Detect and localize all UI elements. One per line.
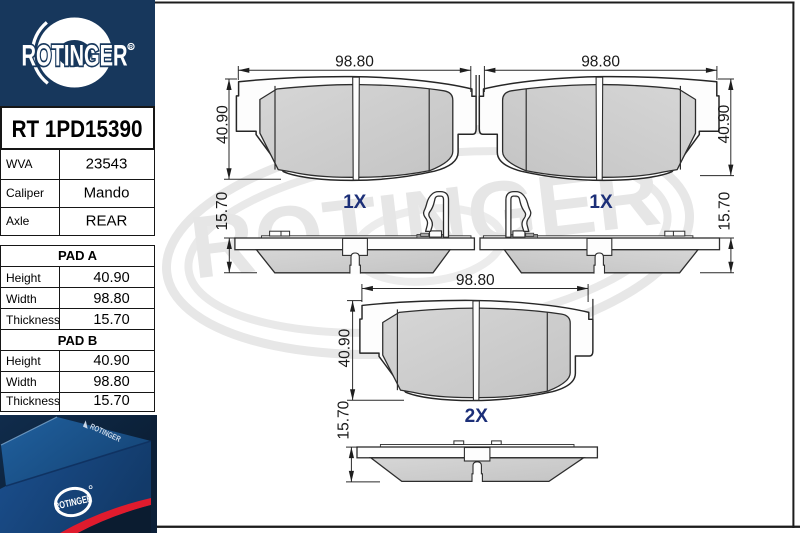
- svg-text:R: R: [129, 45, 133, 51]
- svg-text:40.90: 40.90: [716, 104, 733, 143]
- svg-text:15.70: 15.70: [335, 400, 352, 439]
- svg-text:40.90: 40.90: [337, 328, 354, 367]
- svg-text:ROTINGER: ROTINGER: [21, 40, 127, 73]
- svg-text:1X: 1X: [343, 192, 367, 213]
- svg-text:15.70: 15.70: [214, 191, 231, 230]
- svg-text:1X: 1X: [589, 192, 613, 213]
- svg-text:98.80: 98.80: [581, 54, 620, 71]
- svg-text:40.90: 40.90: [215, 105, 232, 144]
- svg-text:2X: 2X: [465, 406, 489, 427]
- svg-text:98.80: 98.80: [335, 54, 374, 71]
- svg-text:15.70: 15.70: [716, 191, 733, 230]
- svg-text:98.80: 98.80: [456, 272, 495, 289]
